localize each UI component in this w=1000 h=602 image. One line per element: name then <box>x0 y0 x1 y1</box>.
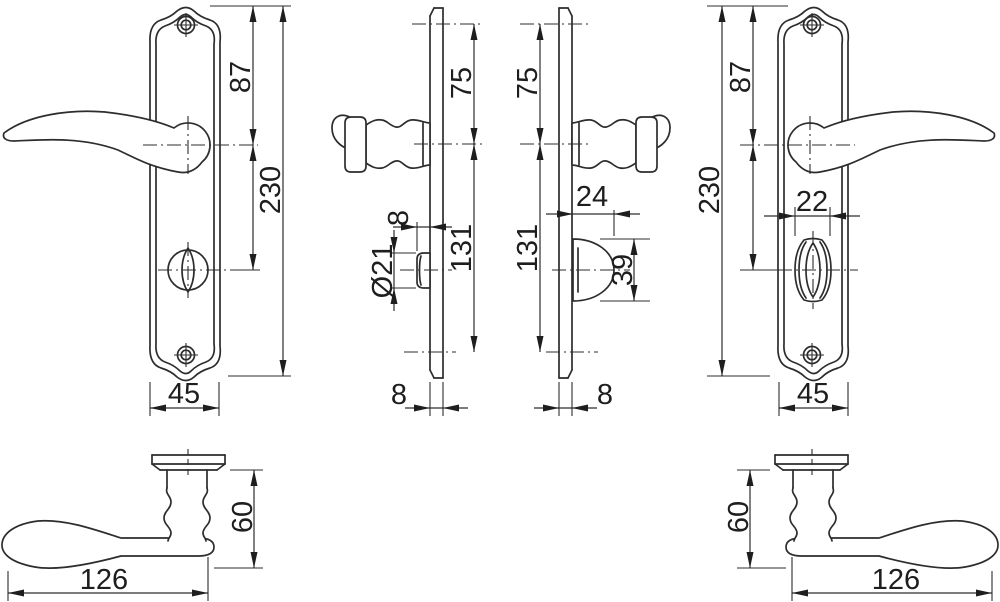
backplate-inner-line <box>156 15 214 374</box>
backplate-side <box>430 8 443 378</box>
backplate-side <box>559 8 572 378</box>
dim-label-8-thickness: 8 <box>391 379 407 411</box>
dim-label-230: 230 <box>255 166 287 214</box>
lever-end-slab <box>345 117 366 172</box>
front-view-right: 87 230 22 45 <box>694 6 995 416</box>
dim-label-24: 24 <box>576 181 608 213</box>
lever-handle <box>788 111 995 172</box>
screw-icon <box>174 343 198 367</box>
dim-label-87: 87 <box>725 61 757 93</box>
dim-label-45: 45 <box>168 378 200 410</box>
dim-label-75: 75 <box>446 67 478 99</box>
dim-label-87: 87 <box>225 61 257 93</box>
dim-label-8-knob: 8 <box>383 210 415 226</box>
dim-label-22: 22 <box>796 186 828 218</box>
technical-drawing: 87 230 45 <box>0 0 1000 602</box>
screw-icon <box>174 13 198 37</box>
dim-label-126: 126 <box>872 564 920 596</box>
drawing-sheet: 87 230 45 <box>0 0 1000 602</box>
dim-label-230: 230 <box>694 166 726 214</box>
handle-top-view-left: 60 126 <box>2 449 263 601</box>
backplate-outline <box>150 8 220 381</box>
dim-label-131: 131 <box>446 224 478 272</box>
side-view-left: 75 131 8 Ø21 8 <box>332 8 482 416</box>
dim-label-75: 75 <box>512 67 544 99</box>
side-view-right: 75 131 24 39 8 <box>512 8 670 416</box>
dim-label-60: 60 <box>723 501 755 533</box>
dim-label-131: 131 <box>512 224 544 272</box>
front-view-left: 87 230 45 <box>3 6 291 416</box>
dim-label-60: 60 <box>227 501 259 533</box>
handle-top-view-right: 60 126 <box>723 449 998 601</box>
lever-end-slab <box>636 117 657 172</box>
screw-icon <box>800 343 824 367</box>
dim-label-39: 39 <box>607 254 639 286</box>
screw-icon <box>800 13 824 37</box>
dim-label-8-thickness: 8 <box>597 379 613 411</box>
lever-handle <box>3 111 210 172</box>
dim-label-45: 45 <box>797 378 829 410</box>
dim-label-dia21: Ø21 <box>367 244 399 299</box>
dim-label-126: 126 <box>80 564 128 596</box>
